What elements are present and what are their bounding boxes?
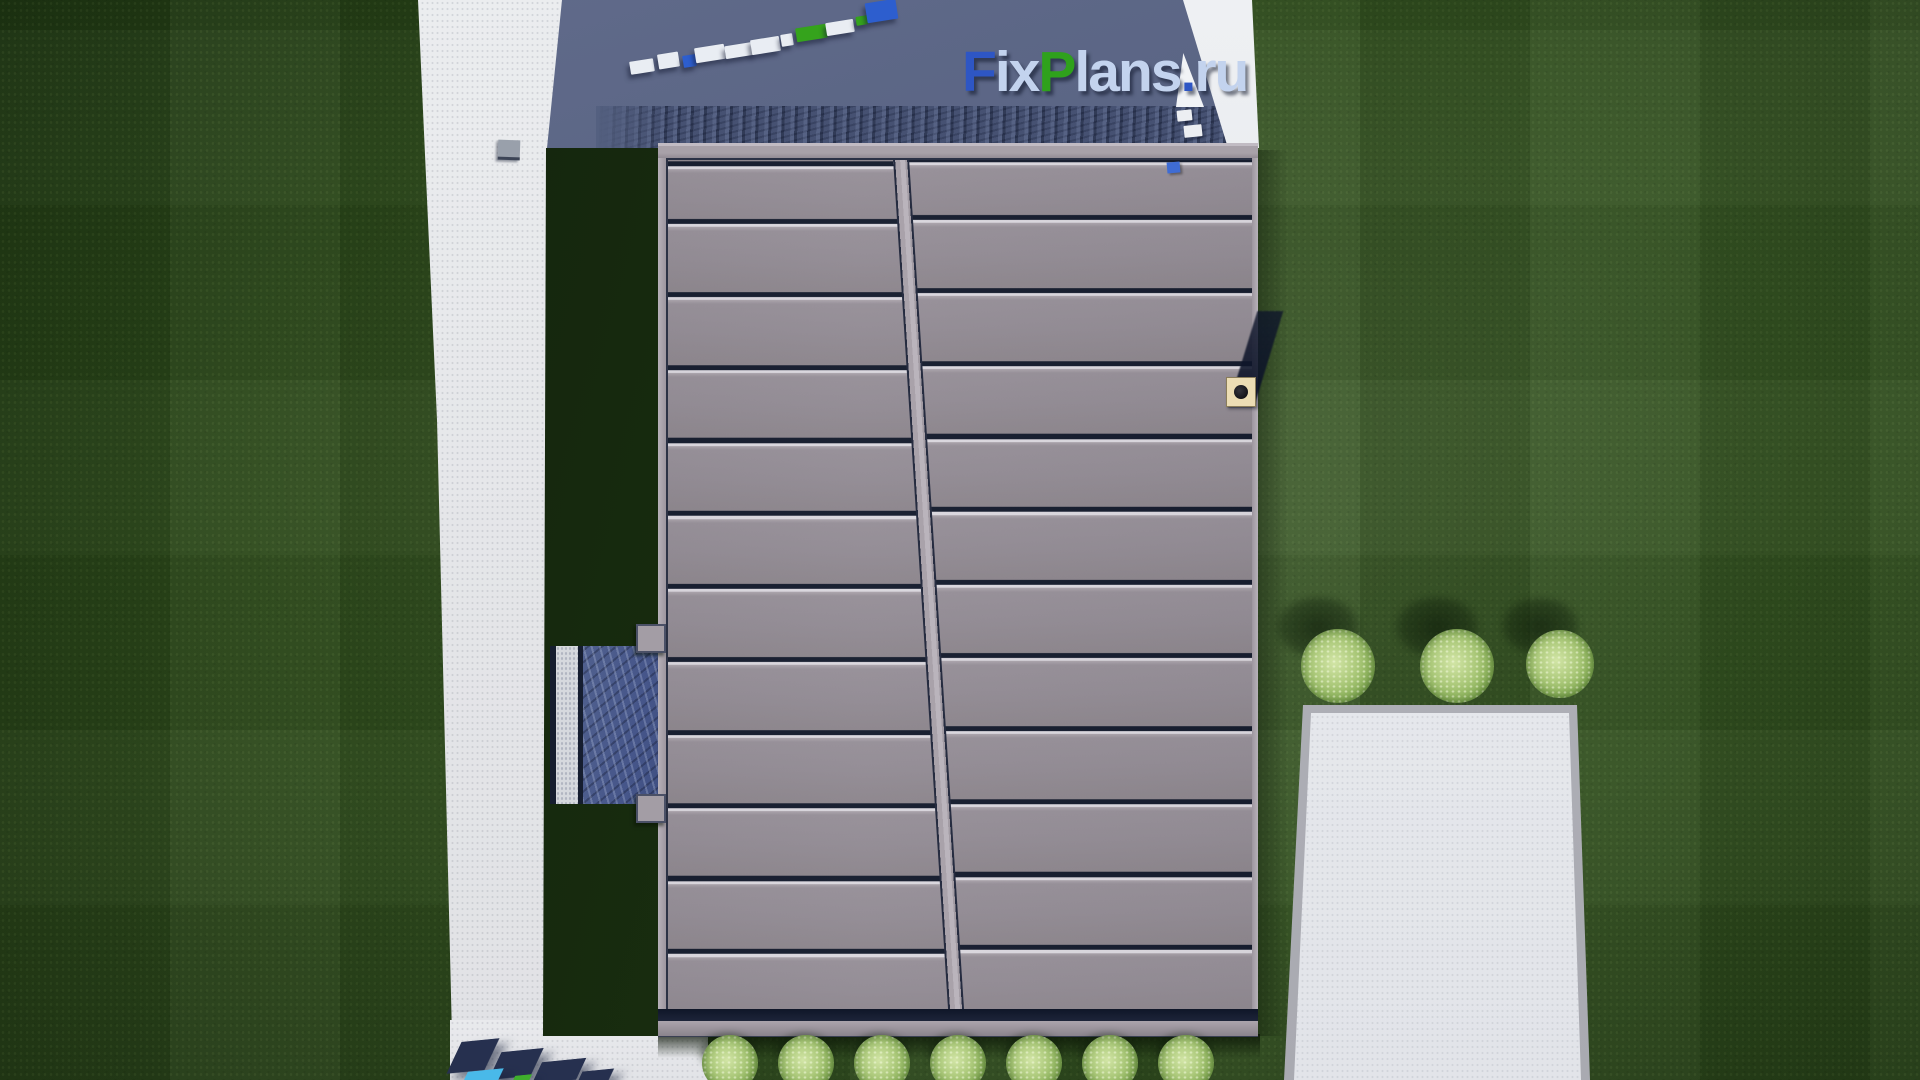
white-paver (1183, 124, 1202, 138)
roof-right-shadow (1256, 150, 1288, 1036)
white-paver (1176, 109, 1192, 122)
chimney-flue-icon (1234, 385, 1248, 399)
roof-gutter-line (658, 1009, 1258, 1021)
watermark-3d-letter-green (512, 1074, 532, 1080)
walkway-concrete-strip (556, 646, 578, 804)
bush (1301, 629, 1375, 703)
roof-left-edge (658, 158, 668, 1010)
brand-watermark: FixPlans.ru (962, 44, 1247, 106)
logo-segment: ru (1194, 40, 1247, 104)
walkway-blue-slab (583, 646, 668, 804)
roof-vent-blue (1167, 161, 1181, 173)
aerial-render-scene: FixPlans.ru (0, 0, 1920, 1080)
roof-right-edge (1252, 158, 1258, 1010)
bush (1526, 630, 1594, 698)
bush (1420, 629, 1494, 703)
roof-top-cap (658, 143, 1258, 160)
small-path-object (498, 140, 521, 161)
roof-step-notch (636, 794, 666, 823)
logo-segment: P (1038, 40, 1074, 104)
watermark-3d-strip (780, 33, 794, 47)
logo-segment: . (1180, 40, 1194, 104)
chimney (1226, 377, 1256, 407)
entrance-walkway (550, 646, 668, 804)
cobblestone-band (596, 106, 1234, 148)
logo-segment: ix (995, 40, 1039, 104)
roof-step-notch (636, 624, 666, 653)
logo-segment: lans (1074, 40, 1180, 104)
logo-segment: F (962, 40, 995, 104)
